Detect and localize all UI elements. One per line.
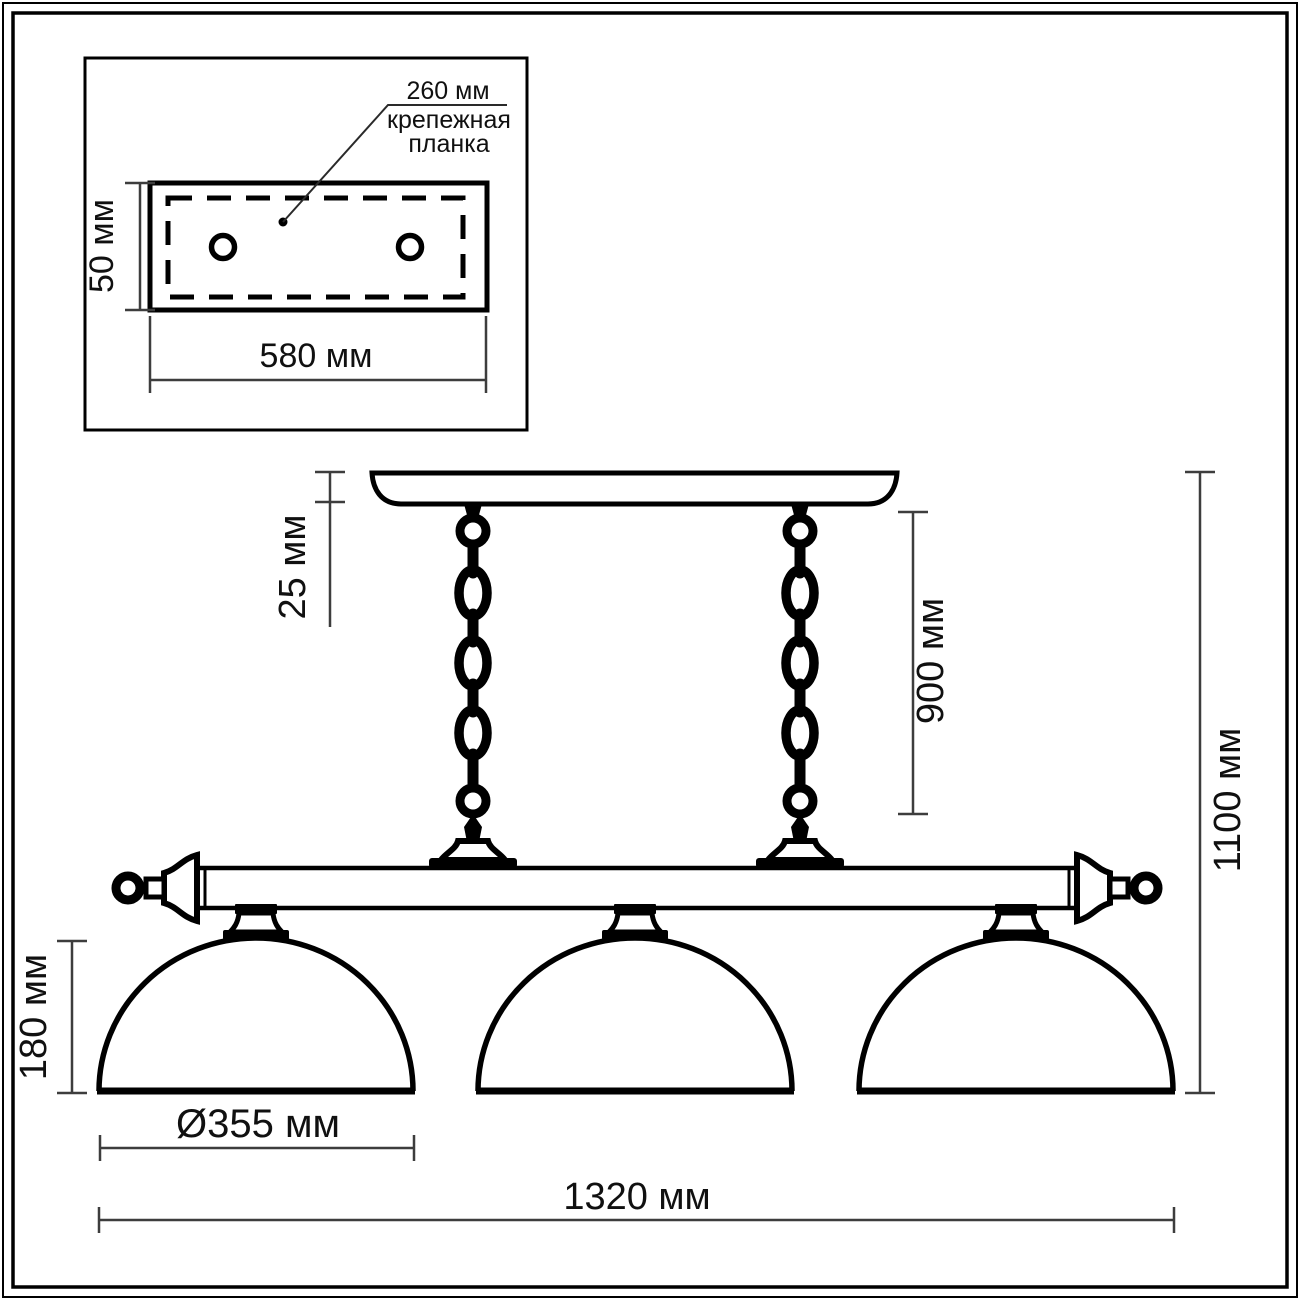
- shade-right: [857, 904, 1175, 1091]
- chain-left: [429, 504, 517, 868]
- shade-height-label: 180 мм: [13, 954, 55, 1080]
- drawing-page: 260 мм крепежная планка 50 мм 580 мм: [0, 0, 1300, 1300]
- chain-length-label: 900 мм: [910, 598, 952, 724]
- shade-height-dimension: [57, 941, 87, 1093]
- canopy-height-label: 25 мм: [272, 514, 314, 619]
- shade-left: [97, 904, 415, 1091]
- mounting-hole-left: [212, 236, 235, 259]
- finial-right: [1077, 855, 1158, 921]
- canopy-height-dimension: [315, 472, 345, 627]
- overall-height-label: 1100 мм: [1207, 728, 1249, 873]
- mounting-plate: [150, 183, 487, 310]
- hole-spacing-label: 260 мм: [406, 77, 489, 105]
- plate-caption-line2: планка: [408, 130, 489, 158]
- finial-left: [116, 855, 197, 921]
- overall-width-label: 1320 мм: [563, 1176, 710, 1218]
- chain-right: [756, 504, 844, 868]
- plate-width-label: 580 мм: [260, 337, 373, 375]
- ceiling-canopy: [372, 473, 897, 504]
- shade-middle: [476, 904, 794, 1091]
- technical-drawing: 260 мм крепежная планка 50 мм 580 мм: [0, 0, 1300, 1300]
- fixture-elevation: [97, 473, 1175, 1091]
- plate-height-label: 50 мм: [83, 199, 121, 293]
- mounting-plate-inset: 260 мм крепежная планка 50 мм 580 мм: [83, 58, 527, 430]
- mounting-hole-right: [399, 236, 422, 259]
- shade-diameter-label: Ø355 мм: [176, 1102, 340, 1146]
- support-bar: [197, 868, 1077, 908]
